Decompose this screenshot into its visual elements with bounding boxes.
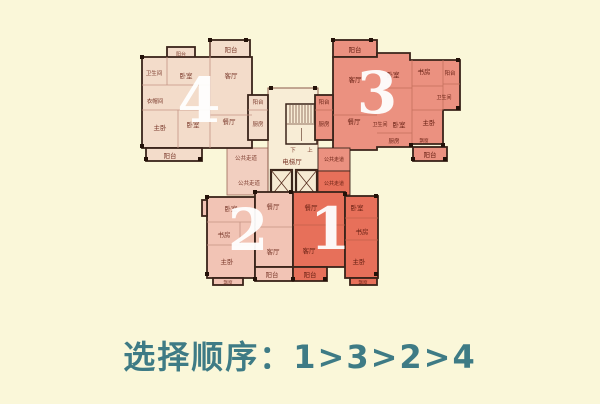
room-label-study: 书房 [418, 67, 431, 76]
room-label-balcony: 阳台 [164, 151, 177, 160]
room-label-dining: 餐厅 [267, 202, 281, 211]
corridor-left: 公共走道 公共走道 [227, 148, 268, 195]
unit2: 卧室 餐厅 书房 客厅 主卧 阳台 飘窗 2 [202, 192, 293, 286]
room-label-kitchen: 厨房 [388, 137, 400, 145]
room-label-bath: 卫生间 [146, 69, 163, 77]
corridor-label: 公共走道 [235, 154, 258, 162]
unit4: 卫生间 卧室 客厅 衣帽间 主卧 卧室 餐厅 阳台 阳台 阳台 阳台 厨房 4 [142, 40, 268, 161]
floorplan-infographic: 公共走道 公共走道 下 上 电梯厅 [0, 0, 600, 404]
room-label-living: 客厅 [225, 71, 239, 80]
selection-order-caption: 选择顺序：1>3>2>4 [123, 338, 477, 376]
room-label-baywindow: 飘窗 [359, 279, 368, 286]
room-label-dining: 餐厅 [223, 117, 237, 126]
unit1-number: 1 [310, 195, 350, 263]
room-label-balcony: 阳台 [444, 69, 456, 77]
room-label-master: 主卧 [423, 118, 437, 127]
room-label-closet: 衣帽间 [147, 97, 164, 105]
unit4-number: 4 [177, 64, 220, 137]
corridor-label: 公共走道 [324, 156, 344, 163]
room-label-balcony: 阳台 [176, 51, 186, 58]
room-label-balcony: 阳台 [318, 98, 330, 106]
room-label-baywindow: 飘窗 [420, 137, 429, 144]
room-label-master: 主卧 [353, 257, 367, 266]
corridor-label: 公共走道 [324, 180, 344, 187]
unit2-number: 2 [228, 196, 268, 264]
elevator-hall-label: 电梯厅 [282, 157, 302, 166]
room-label-kitchen: 厨房 [318, 120, 330, 128]
room-label-baywindow: 飘窗 [224, 279, 233, 286]
room-label-balcony: 阳台 [424, 150, 437, 159]
unit2-baywindow-side [202, 200, 207, 216]
room-label-balcony: 阳台 [252, 98, 264, 106]
room-label-living: 客厅 [267, 247, 281, 256]
room-label-master: 主卧 [154, 123, 168, 132]
corridor-label: 公共走道 [238, 179, 261, 187]
unit3-number: 3 [357, 59, 397, 127]
room-label-balcony: 阳台 [304, 270, 317, 279]
room-label-bath: 卫生间 [436, 94, 451, 101]
stair-down-label: 下 [290, 147, 296, 154]
stair-up-label: 上 [307, 146, 313, 154]
room-label-balcony: 阳台 [349, 45, 362, 54]
room-label-balcony: 阳台 [225, 45, 238, 54]
room-label-study: 书房 [356, 227, 369, 236]
room-label-kitchen: 厨房 [252, 120, 264, 128]
room-label-bedroom: 卧室 [351, 203, 365, 212]
central-core: 下 上 电梯厅 [268, 88, 318, 196]
room-label-balcony: 阳台 [266, 270, 279, 279]
